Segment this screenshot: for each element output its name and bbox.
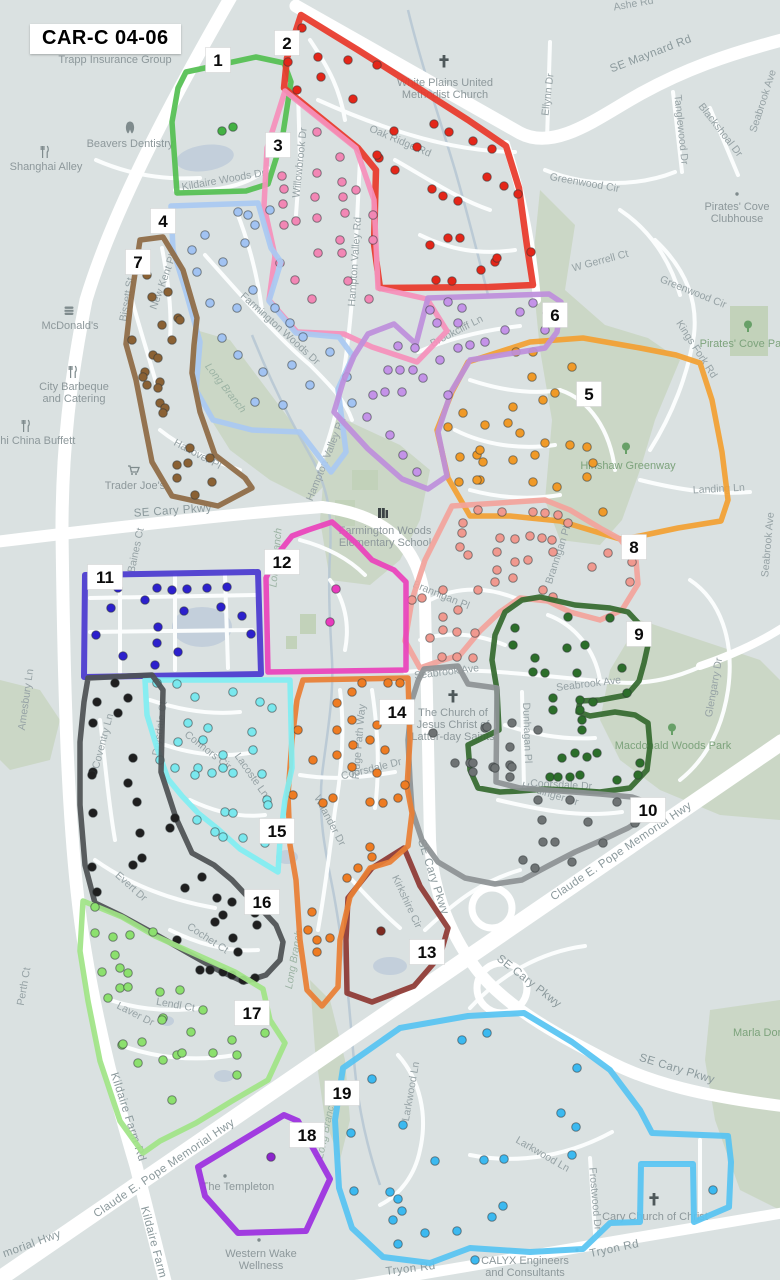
address-dot — [256, 698, 265, 707]
address-dot — [229, 934, 238, 943]
address-dot — [124, 983, 133, 992]
park-area — [352, 470, 378, 490]
address-dot — [187, 1028, 196, 1037]
address-dot — [313, 169, 322, 178]
map-title-badge: CAR-C 04-06 — [30, 24, 181, 54]
burger-icon — [65, 307, 74, 316]
address-dot — [133, 798, 142, 807]
address-dot — [541, 669, 550, 678]
address-dot — [469, 137, 478, 146]
address-dot — [206, 966, 215, 975]
address-dot — [91, 929, 100, 938]
address-dot — [253, 921, 262, 930]
address-dot — [401, 781, 410, 790]
address-dot — [589, 459, 598, 468]
address-dot — [196, 966, 205, 975]
address-dot — [439, 586, 448, 595]
cart-wheel — [131, 473, 133, 475]
address-dot — [618, 664, 627, 673]
address-dot — [431, 1157, 440, 1166]
address-dot — [426, 306, 435, 315]
poi-label: Pirates' CoveClubhouse — [704, 201, 769, 225]
address-dot — [193, 816, 202, 825]
zone-18-label: 18 — [290, 1123, 325, 1148]
address-dot — [459, 409, 468, 418]
zone-label-number: 9 — [634, 625, 643, 644]
address-dot — [430, 120, 439, 129]
zone-label-number: 11 — [96, 568, 114, 587]
address-dot — [426, 241, 435, 250]
address-dot — [623, 689, 632, 698]
address-dot — [421, 1229, 430, 1238]
dot-icon — [223, 1174, 226, 1177]
address-dot — [366, 843, 375, 852]
address-dot — [564, 519, 573, 528]
address-dot — [188, 246, 197, 255]
address-dot — [369, 391, 378, 400]
address-dot — [191, 491, 200, 500]
address-dot — [278, 172, 287, 181]
address-dot — [396, 366, 405, 375]
address-dot — [531, 864, 540, 873]
address-dot — [211, 828, 220, 837]
address-dot — [293, 86, 302, 95]
address-dot — [493, 548, 502, 557]
address-dot — [626, 578, 635, 587]
address-dot — [178, 1049, 187, 1058]
address-dot — [480, 1156, 489, 1165]
address-dot — [348, 763, 357, 772]
park-area — [300, 614, 316, 634]
address-dot — [114, 709, 123, 718]
address-dot — [506, 773, 515, 782]
address-dot — [391, 166, 400, 175]
dot-icon — [735, 192, 738, 195]
address-dot — [129, 754, 138, 763]
address-dot — [341, 209, 350, 218]
address-dot — [88, 771, 97, 780]
address-dot — [184, 719, 193, 728]
address-dot — [268, 704, 277, 713]
address-dot — [124, 969, 133, 978]
zone-label-number: 19 — [333, 1084, 352, 1103]
poi-label: Beavers Dentistry — [87, 138, 174, 150]
address-dot — [138, 854, 147, 863]
address-dot — [208, 769, 217, 778]
address-dot — [444, 298, 453, 307]
address-dot — [176, 986, 185, 995]
address-dot — [458, 304, 467, 313]
address-dot — [390, 127, 399, 136]
address-dot — [519, 856, 528, 865]
address-dot — [529, 299, 538, 308]
address-dot — [119, 652, 128, 661]
address-dot — [233, 1051, 242, 1060]
address-dot — [284, 58, 293, 67]
address-dot — [444, 423, 453, 432]
address-dot — [326, 934, 335, 943]
address-dot — [314, 249, 323, 258]
poi-label: Shanghai Alley — [10, 161, 83, 173]
address-dot — [153, 584, 162, 593]
zone-12-label: 12 — [265, 550, 300, 575]
address-dot — [455, 478, 464, 487]
address-dot — [394, 342, 403, 351]
address-dot — [166, 824, 175, 833]
address-dot — [338, 178, 347, 187]
tree-trunk — [747, 328, 749, 333]
address-dot — [539, 838, 548, 847]
address-dot — [548, 536, 557, 545]
address-dot — [453, 628, 462, 637]
address-dot — [438, 653, 447, 662]
address-dot — [289, 791, 298, 800]
address-dot — [317, 73, 326, 82]
address-dot — [476, 446, 485, 455]
address-dot — [394, 1195, 403, 1204]
address-dot — [229, 123, 238, 132]
address-dot — [458, 1036, 467, 1045]
address-dot — [138, 1038, 147, 1047]
address-dot — [456, 234, 465, 243]
zone-label-number: 3 — [273, 136, 282, 155]
address-dot — [159, 1056, 168, 1065]
zone-label-number: 4 — [158, 212, 168, 231]
address-dot — [549, 706, 558, 715]
address-dot — [483, 173, 492, 182]
address-dot — [500, 182, 509, 191]
address-dot — [258, 770, 267, 779]
zone-10-label: 10 — [631, 798, 666, 823]
zone-label-number: 18 — [298, 1126, 317, 1145]
address-dot — [524, 556, 533, 565]
address-dot — [483, 723, 492, 732]
address-dot — [164, 288, 173, 297]
address-dot — [363, 413, 372, 422]
address-dot — [593, 749, 602, 758]
address-dot — [267, 1153, 276, 1162]
map-title-text: CAR-C 04-06 — [42, 27, 169, 49]
address-dot — [498, 508, 507, 517]
address-dot — [529, 668, 538, 677]
address-dot — [116, 984, 125, 993]
address-dot — [98, 968, 107, 977]
address-dot — [350, 1187, 359, 1196]
address-dot — [239, 834, 248, 843]
address-dot — [439, 626, 448, 635]
address-dot — [124, 694, 133, 703]
address-dot — [491, 764, 500, 773]
address-dot — [93, 888, 102, 897]
zone-9-label: 9 — [627, 622, 652, 647]
address-dot — [369, 211, 378, 220]
address-dot — [241, 239, 250, 248]
address-dot — [581, 641, 590, 650]
address-dot — [509, 641, 518, 650]
address-dot — [488, 145, 497, 154]
address-dot — [469, 759, 478, 768]
address-dot — [294, 726, 303, 735]
address-dot — [249, 286, 258, 295]
address-dot — [566, 441, 575, 450]
address-dot — [228, 898, 237, 907]
address-dot — [539, 586, 548, 595]
address-dot — [365, 295, 374, 304]
zone-13-label: 13 — [410, 940, 445, 965]
address-dot — [344, 277, 353, 286]
dot-icon — [257, 1238, 260, 1241]
address-dot — [444, 234, 453, 243]
address-dot — [183, 585, 192, 594]
address-dot — [541, 439, 550, 448]
address-dot — [381, 746, 390, 755]
address-dot — [184, 459, 193, 468]
address-dot — [493, 254, 502, 263]
address-dot — [126, 931, 135, 940]
poi-label: Trader Joe's — [105, 480, 166, 492]
address-dot — [352, 186, 361, 195]
address-dot — [500, 1155, 509, 1164]
address-dot — [509, 456, 518, 465]
address-dot — [509, 403, 518, 412]
address-dot — [501, 326, 510, 335]
address-dot — [589, 698, 598, 707]
address-dot — [578, 726, 587, 735]
address-dot — [199, 736, 208, 745]
address-dot — [111, 679, 120, 688]
address-dot — [259, 368, 268, 377]
address-dot — [219, 833, 228, 842]
address-dot — [373, 151, 382, 160]
zone-label-number: 17 — [243, 1004, 262, 1023]
zone-label-number: 15 — [268, 822, 287, 841]
address-dot — [154, 384, 163, 393]
address-dot — [394, 1240, 403, 1249]
address-dot — [419, 374, 428, 383]
address-dot — [348, 688, 357, 697]
address-dot — [271, 304, 280, 313]
address-dot — [369, 236, 378, 245]
poi-label: chi China Buffett — [0, 435, 75, 447]
address-dot — [604, 549, 613, 558]
address-dot — [409, 366, 418, 375]
address-dot — [191, 771, 200, 780]
address-dot — [473, 476, 482, 485]
address-dot — [448, 277, 457, 286]
zone-19-label: 19 — [325, 1081, 360, 1106]
address-dot — [176, 316, 185, 325]
address-dot — [304, 926, 313, 935]
zone-label-number: 8 — [629, 538, 638, 557]
address-dot — [313, 948, 322, 957]
address-dot — [568, 1151, 577, 1160]
address-dot — [432, 276, 441, 285]
address-dot — [124, 779, 133, 788]
address-dot — [279, 401, 288, 410]
address-dot — [319, 799, 328, 808]
zone-17-label: 17 — [235, 1001, 270, 1026]
water-pond — [214, 1070, 234, 1082]
address-dot — [509, 574, 518, 583]
address-dot — [413, 143, 422, 152]
address-dot — [306, 381, 315, 390]
address-dot — [311, 193, 320, 202]
poi-label: Trapp Insurance Group — [58, 54, 171, 66]
address-dot — [491, 578, 500, 587]
address-dot — [568, 858, 577, 867]
zone-6-label: 6 — [543, 303, 568, 328]
address-dot — [557, 1109, 566, 1118]
address-dot — [483, 1029, 492, 1038]
address-dot — [159, 409, 168, 418]
address-dot — [377, 927, 386, 936]
address-dot — [292, 217, 301, 226]
poi-dot — [223, 1174, 226, 1177]
address-dot — [529, 478, 538, 487]
address-dot — [709, 1186, 718, 1195]
address-dot — [358, 679, 367, 688]
address-dot — [399, 451, 408, 460]
address-dot — [308, 295, 317, 304]
address-dot — [333, 699, 342, 708]
address-dot — [168, 336, 177, 345]
address-dot — [313, 936, 322, 945]
address-dot — [554, 511, 563, 520]
address-dot — [477, 266, 486, 275]
address-dot — [168, 586, 177, 595]
address-dot — [456, 453, 465, 462]
address-dot — [529, 508, 538, 517]
address-dot — [583, 473, 592, 482]
address-dot — [158, 321, 167, 330]
address-dot — [474, 586, 483, 595]
zone-8-label: 8 — [622, 535, 647, 560]
address-dot — [153, 639, 162, 648]
address-dot — [219, 258, 228, 267]
address-dot — [599, 508, 608, 517]
zone-3-label: 3 — [266, 133, 291, 158]
address-dot — [244, 211, 253, 220]
zone-label-number: 2 — [282, 34, 291, 53]
address-dot — [516, 308, 525, 317]
address-dot — [338, 249, 347, 258]
address-dot — [336, 153, 345, 162]
zone-label-number: 14 — [388, 703, 407, 722]
address-dot — [554, 773, 563, 782]
zone-4-label: 4 — [151, 209, 176, 234]
zone-16-label: 16 — [245, 890, 280, 915]
address-dot — [92, 631, 101, 640]
address-dot — [229, 809, 238, 818]
tree-trunk — [671, 731, 673, 736]
address-dot — [348, 716, 357, 725]
address-dot — [373, 61, 382, 70]
address-dot — [211, 918, 220, 927]
address-dot — [588, 563, 597, 572]
address-dot — [261, 1029, 270, 1038]
address-dot — [344, 56, 353, 65]
address-dot — [143, 381, 152, 390]
address-dot — [578, 716, 587, 725]
address-dot — [218, 127, 227, 136]
address-dot — [171, 764, 180, 773]
address-dot — [186, 444, 195, 453]
address-dot — [534, 726, 543, 735]
burger-bottom — [65, 313, 74, 315]
address-dot — [453, 653, 462, 662]
zone-label-number: 6 — [550, 306, 559, 325]
address-dot — [451, 759, 460, 768]
address-dot — [606, 614, 615, 623]
address-dot — [384, 679, 393, 688]
address-dot — [528, 373, 537, 382]
zone-14-label: 14 — [380, 700, 415, 725]
street-label: Dunhagan Pl — [520, 702, 534, 763]
address-dot — [439, 613, 448, 622]
address-dot — [481, 338, 490, 347]
address-dot — [379, 799, 388, 808]
address-dot — [248, 728, 257, 737]
address-dot — [203, 584, 212, 593]
address-dot — [251, 221, 260, 230]
address-dot — [119, 1040, 128, 1049]
address-dot — [386, 1188, 395, 1197]
address-dot — [149, 928, 158, 937]
address-dot — [249, 746, 258, 755]
address-dot — [158, 1016, 167, 1025]
address-dot — [180, 607, 189, 616]
address-dot — [234, 948, 243, 957]
zone-7-label: 7 — [126, 250, 151, 275]
address-dot — [234, 208, 243, 217]
address-dot — [411, 344, 420, 353]
address-dot — [171, 814, 180, 823]
address-dot — [349, 95, 358, 104]
tree-trunk — [625, 450, 627, 455]
address-dot — [343, 874, 352, 883]
address-dot — [466, 341, 475, 350]
address-dot — [454, 606, 463, 615]
address-dot — [329, 794, 338, 803]
address-dot — [469, 768, 478, 777]
address-dot — [141, 596, 150, 605]
address-dot — [568, 363, 577, 372]
park-area — [286, 636, 297, 649]
map-canvas[interactable]: SE Maynard RdAshe RdEllynn DrTanglewood … — [0, 0, 780, 1280]
address-dot — [514, 190, 523, 199]
address-dot — [148, 293, 157, 302]
address-dot — [508, 763, 517, 772]
address-dot — [229, 769, 238, 778]
address-dot — [516, 429, 525, 438]
address-dot — [104, 994, 113, 1003]
address-dot — [366, 736, 375, 745]
address-dot — [531, 451, 540, 460]
address-dot — [128, 336, 137, 345]
burger-mid — [65, 310, 74, 312]
address-dot — [129, 861, 138, 870]
address-dot — [173, 461, 182, 470]
address-dot — [471, 629, 480, 638]
address-dot — [546, 773, 555, 782]
address-dot — [368, 1075, 377, 1084]
address-dot — [291, 276, 300, 285]
address-dot — [572, 1123, 581, 1132]
address-dot — [551, 389, 560, 398]
address-dot — [251, 398, 260, 407]
school-bar — [378, 508, 381, 518]
address-dot — [313, 214, 322, 223]
